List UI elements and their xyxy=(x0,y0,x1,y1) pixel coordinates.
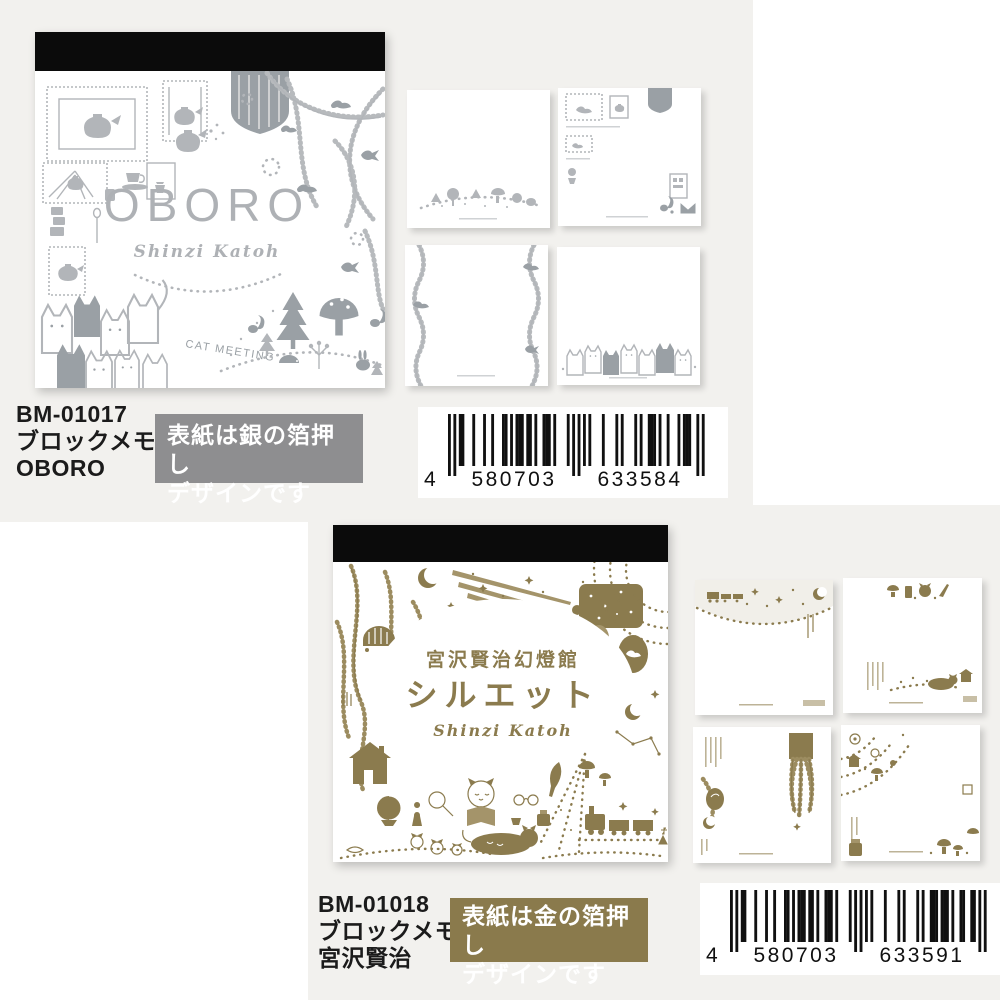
cat-row-memo-art xyxy=(557,247,700,385)
product-1-memo-sample-3 xyxy=(405,245,548,386)
product-1-cover: OBORO Shinzi Katoh CAT MEETING xyxy=(35,32,385,388)
barcode-digit-group2: 633591 xyxy=(864,944,980,968)
bird-branch-icon xyxy=(703,779,724,829)
icons-cat-memo-art xyxy=(843,578,982,713)
badge-line-2: デザインです xyxy=(167,479,351,508)
chess-pawn-icon xyxy=(412,802,422,826)
botanical-border-memo-art xyxy=(405,245,548,386)
magnifier-icon xyxy=(429,792,453,816)
badge-line-1: 表紙は銀の箔押し xyxy=(167,421,351,479)
product-2-type: ブロックメモ xyxy=(318,918,458,945)
cover-artist: Shinzi Katoh xyxy=(134,242,281,262)
product-2-memo-sample-4 xyxy=(841,725,980,861)
badge-line-1: 表紙は金の箔押し xyxy=(462,902,636,960)
product-1-barcode: 4 580703 633584 xyxy=(418,407,728,498)
black-cat-icon xyxy=(463,825,538,855)
product-2-cover-binding xyxy=(333,525,668,562)
reading-cat-icon xyxy=(467,778,495,826)
product-1-memo-sample-4 xyxy=(557,247,700,385)
floating-teapot-icon xyxy=(176,124,224,152)
product-1-memo-sample-2 xyxy=(558,88,701,226)
vertical-text-lines xyxy=(851,817,858,839)
barcode-digit-lead: 4 xyxy=(706,944,720,968)
product-1-foil-badge: 表紙は銀の箔押し デザインです xyxy=(155,414,363,483)
forest-animals-icon xyxy=(221,292,385,375)
catalog-sheet: OBORO Shinzi Katoh CAT MEETING xyxy=(0,0,1000,1000)
vertical-text-lines xyxy=(705,737,722,767)
cover-artist: Shinzi Katoh xyxy=(433,721,573,740)
tanabata-memo-art xyxy=(693,727,831,863)
barcode-digit-group1: 580703 xyxy=(456,468,572,492)
product-1-cover-art: OBORO Shinzi Katoh CAT MEETING xyxy=(35,71,385,388)
product-2-name: 宮沢賢治 xyxy=(318,945,458,972)
product-1-code: BM-01017 xyxy=(16,401,156,428)
product-2-barcode-bars xyxy=(730,890,988,952)
product-2-label: BM-01018 ブロックメモ 宮沢賢治 xyxy=(318,891,458,972)
product-2-memo-sample-2 xyxy=(843,578,982,713)
product-1-barcode-bars xyxy=(448,414,706,476)
cover-title: OBORO xyxy=(104,179,310,231)
product-1-type: ブロックメモ xyxy=(16,428,156,455)
house-icon xyxy=(349,742,391,784)
small-cats-icon xyxy=(347,833,462,855)
lying-cat-icon xyxy=(928,674,958,690)
product-1-name: OBORO xyxy=(16,455,156,482)
hanging-willow-icon xyxy=(789,733,813,831)
cat-group-icon: CAT MEETING xyxy=(42,280,276,388)
product-2-foil-badge: 表紙は金の箔押し デザインです xyxy=(450,898,648,962)
product-2-code: BM-01018 xyxy=(318,891,458,918)
glasses-icon xyxy=(514,795,538,805)
garden-corner-memo-art xyxy=(841,725,980,861)
barcode-digit-lead: 4 xyxy=(424,468,438,492)
product-1-cover-binding xyxy=(35,32,385,71)
spoon-icon xyxy=(94,209,101,244)
crescent-moon-icon xyxy=(418,566,442,588)
badge-line-2: デザインです xyxy=(462,960,636,989)
floral-corner xyxy=(841,734,909,795)
cat-meeting-text: CAT MEETING xyxy=(185,338,276,364)
shield-pennant-icon xyxy=(231,71,289,134)
product-2-memo-sample-3 xyxy=(693,727,831,863)
product-2-cover-art: 宮沢賢治幻燈館 シルエット Shinzi Katoh xyxy=(333,562,668,862)
barcode-digit-group2: 633584 xyxy=(582,468,698,492)
product-2-barcode: 4 580703 633591 xyxy=(700,883,1000,975)
globe-icon xyxy=(377,796,401,826)
product-1-memo-sample-1 xyxy=(407,90,550,228)
vertical-text-lines xyxy=(867,662,884,690)
meadow-memo-art xyxy=(407,90,550,228)
product-2-cover: 宮沢賢治幻燈館 シルエット Shinzi Katoh xyxy=(333,525,668,862)
cover-subtitle: 宮沢賢治幻燈館 xyxy=(426,648,580,671)
product-2-memo-sample-1 xyxy=(695,580,833,715)
starry-arch-memo-art xyxy=(695,580,833,715)
steam-train-icon xyxy=(579,802,667,844)
barcode-digit-group1: 580703 xyxy=(738,944,854,968)
frames-memo-art xyxy=(558,88,701,226)
dotted-arc xyxy=(135,273,283,292)
cover-title: シルエット xyxy=(405,677,600,713)
product-1-label: BM-01017 ブロックメモ OBORO xyxy=(16,401,156,482)
vending-machine-icon xyxy=(670,174,687,198)
